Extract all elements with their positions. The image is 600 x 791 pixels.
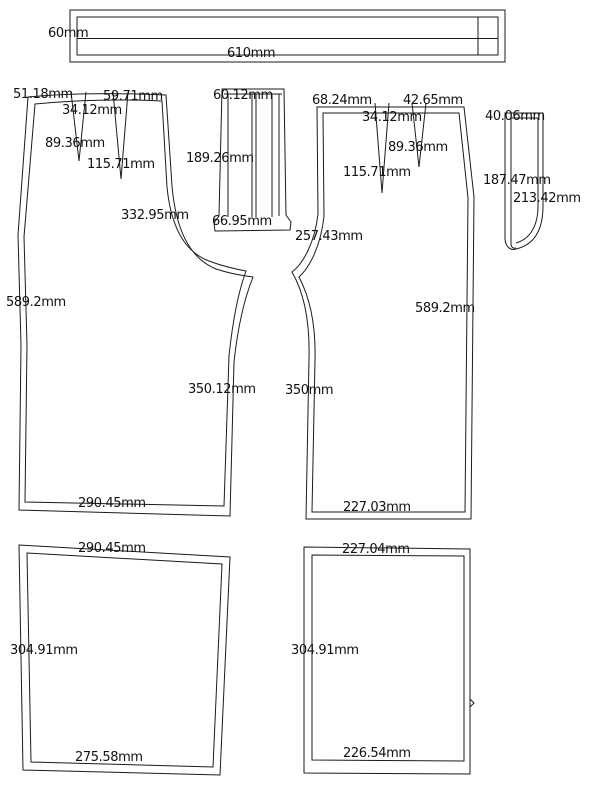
left-lining-piece: 290.45mm 304.91mm 275.58mm <box>10 541 230 775</box>
dim-right-lining-bottom: 226.54mm <box>343 746 411 761</box>
dim-right-lining-side: 304.91mm <box>291 643 359 658</box>
dim-right-side-seam: 589.2mm <box>415 301 475 316</box>
left-lining-inner-outline <box>27 553 222 767</box>
dim-fly-shield-inner-length: 187.47mm <box>483 173 551 188</box>
dim-waistband-length: 610mm <box>227 46 275 61</box>
dim-right-dart-deep: 115.71mm <box>343 165 411 180</box>
waistband-outer-outline <box>70 10 505 62</box>
dim-left-dart-deep: 115.71mm <box>87 157 155 172</box>
pattern-drawing-canvas: 60mm 610mm 51.18mm 59.71mm 34.12mm 89.36… <box>0 0 600 787</box>
dim-left-lining-bottom: 275.58mm <box>75 750 143 765</box>
dim-fly-facing-bottom: 66.95mm <box>212 214 272 229</box>
right-lining-outer-outline <box>304 547 470 774</box>
dim-fly-shield-outer-length: 213.42mm <box>513 191 581 206</box>
dim-waistband-height: 60mm <box>48 26 88 41</box>
dim-right-inseam: 350mm <box>285 383 333 398</box>
dim-left-lining-top: 290.45mm <box>78 541 146 556</box>
dim-left-waist-edge: 51.18mm <box>13 87 73 102</box>
dim-right-dart-offset: 34.12mm <box>362 110 422 125</box>
dim-right-crotch-seam: 257.43mm <box>295 229 363 244</box>
dim-right-hem: 227.03mm <box>343 500 411 515</box>
dim-left-dart-shallow: 89.36mm <box>45 136 105 151</box>
right-lining-piece: 227.04mm 304.91mm 226.54mm <box>291 542 474 774</box>
waistband-inner-outline <box>77 17 498 55</box>
dim-right-waist-edge: 68.24mm <box>312 93 372 108</box>
dim-left-crotch-seam: 332.95mm <box>121 208 189 223</box>
dim-left-side-seam: 589.2mm <box>6 295 66 310</box>
dim-left-lining-side: 304.91mm <box>10 643 78 658</box>
left-lining-outer-outline <box>19 545 230 775</box>
waistband-piece: 60mm 610mm <box>48 10 505 62</box>
dim-right-lining-top: 227.04mm <box>342 542 410 557</box>
fly-facing-piece: 60.12mm 189.26mm 66.95mm <box>186 88 291 231</box>
fly-shield-piece: 40.06mm 187.47mm 213.42mm <box>483 109 581 249</box>
dim-left-hem: 290.45mm <box>78 496 146 511</box>
dim-left-dart-spacing: 59.71mm <box>103 89 163 104</box>
sewing-pattern-drawing: 60mm 610mm 51.18mm 59.71mm 34.12mm 89.36… <box>0 0 600 787</box>
dim-left-dart-offset: 34.12mm <box>62 103 122 118</box>
dim-right-dart-spacing: 42.65mm <box>403 93 463 108</box>
right-lining-inner-outline <box>312 555 464 761</box>
right-trouser-panel: 68.24mm 42.65mm 34.12mm 89.36mm 115.71mm… <box>285 93 475 519</box>
right-lining-notch <box>470 699 474 707</box>
dim-left-inseam: 350.12mm <box>188 382 256 397</box>
dim-fly-shield-top: 40.06mm <box>485 109 545 124</box>
dim-fly-facing-top: 60.12mm <box>213 88 273 103</box>
dim-right-dart-shallow: 89.36mm <box>388 140 448 155</box>
dim-fly-facing-length: 189.26mm <box>186 151 254 166</box>
